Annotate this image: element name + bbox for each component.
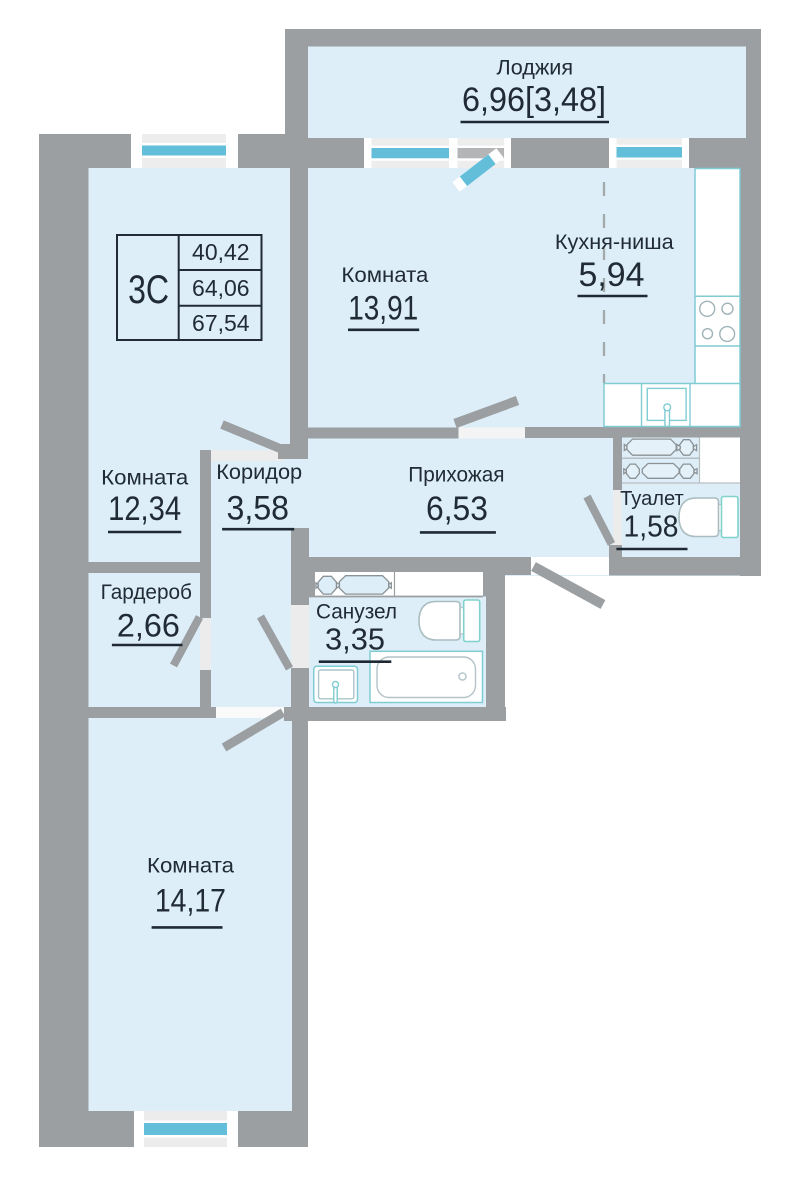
svg-text:6,53: 6,53 bbox=[426, 490, 488, 528]
svg-text:3,35: 3,35 bbox=[325, 622, 385, 657]
svg-text:14,17: 14,17 bbox=[155, 883, 226, 919]
svg-text:Комната: Комната bbox=[147, 855, 234, 878]
svg-text:Комната: Комната bbox=[101, 466, 188, 489]
svg-text:Санузел: Санузел bbox=[316, 600, 397, 623]
svg-text:40,42: 40,42 bbox=[192, 239, 250, 265]
svg-text:1,58: 1,58 bbox=[624, 509, 679, 544]
svg-text:Гардероб: Гардероб bbox=[101, 581, 192, 604]
svg-text:Прихожая: Прихожая bbox=[408, 463, 504, 486]
svg-text:13,91: 13,91 bbox=[348, 289, 418, 327]
svg-text:3С: 3С bbox=[128, 268, 169, 312]
svg-text:5,94: 5,94 bbox=[579, 256, 645, 294]
svg-text:6,96[3,48]: 6,96[3,48] bbox=[462, 81, 606, 119]
svg-text:Лоджия: Лоджия bbox=[497, 56, 574, 79]
svg-text:2,66: 2,66 bbox=[117, 608, 180, 644]
svg-text:3,58: 3,58 bbox=[227, 489, 290, 527]
svg-text:12,34: 12,34 bbox=[108, 490, 181, 528]
svg-text:64,06: 64,06 bbox=[192, 275, 250, 301]
svg-text:Туалет: Туалет bbox=[620, 488, 684, 510]
svg-text:Комната: Комната bbox=[341, 264, 428, 287]
svg-text:67,54: 67,54 bbox=[192, 310, 250, 336]
svg-text:Кухня-ниша: Кухня-ниша bbox=[555, 231, 674, 254]
svg-text:Коридор: Коридор bbox=[216, 461, 302, 484]
